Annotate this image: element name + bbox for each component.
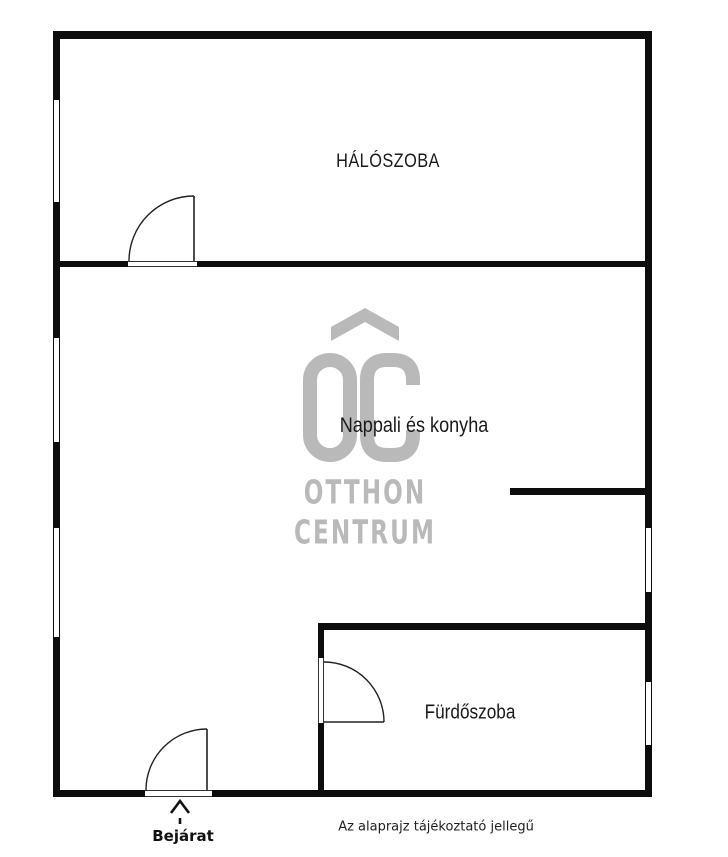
watermark-line1: OTTHON (304, 473, 427, 512)
bedroom-door-opening (128, 261, 197, 267)
window-left-1 (53, 100, 60, 202)
wall-bathroom-top (318, 623, 652, 630)
window-left-3 (53, 528, 60, 637)
door-swing-bedroom-arc (129, 196, 194, 261)
disclaimer-text: Az alaprajz tájékoztató jellegű (338, 820, 534, 835)
wall-living-stub (510, 488, 652, 495)
entrance-door-opening (145, 790, 212, 797)
window-right-2 (645, 682, 652, 745)
floor-plan: OTTHON CENTRUM HÁLÓSZOBA Nappali és kony… (0, 0, 728, 857)
room-label-bathroom: Fürdőszoba (425, 702, 516, 725)
door-swing-bathroom-arc (324, 662, 384, 722)
wall-top (53, 31, 652, 39)
room-label-living-kitchen: Nappali és konyha (340, 414, 489, 438)
door-swing-entrance-arc (146, 729, 207, 790)
wall-bottom (53, 790, 652, 797)
bathroom-door-opening (318, 658, 324, 723)
logo-letter-o-icon (310, 360, 350, 455)
window-right-1 (645, 528, 652, 592)
entrance-label: Bejárat (152, 827, 214, 845)
room-label-bedroom: HÁLÓSZOBA (336, 151, 440, 173)
entrance-arrow-icon (171, 801, 189, 813)
logo-letter-c-icon (367, 360, 413, 455)
window-left-2 (53, 338, 60, 442)
logo-roof-icon (331, 308, 399, 341)
watermark-line2: CENTRUM (294, 513, 436, 552)
